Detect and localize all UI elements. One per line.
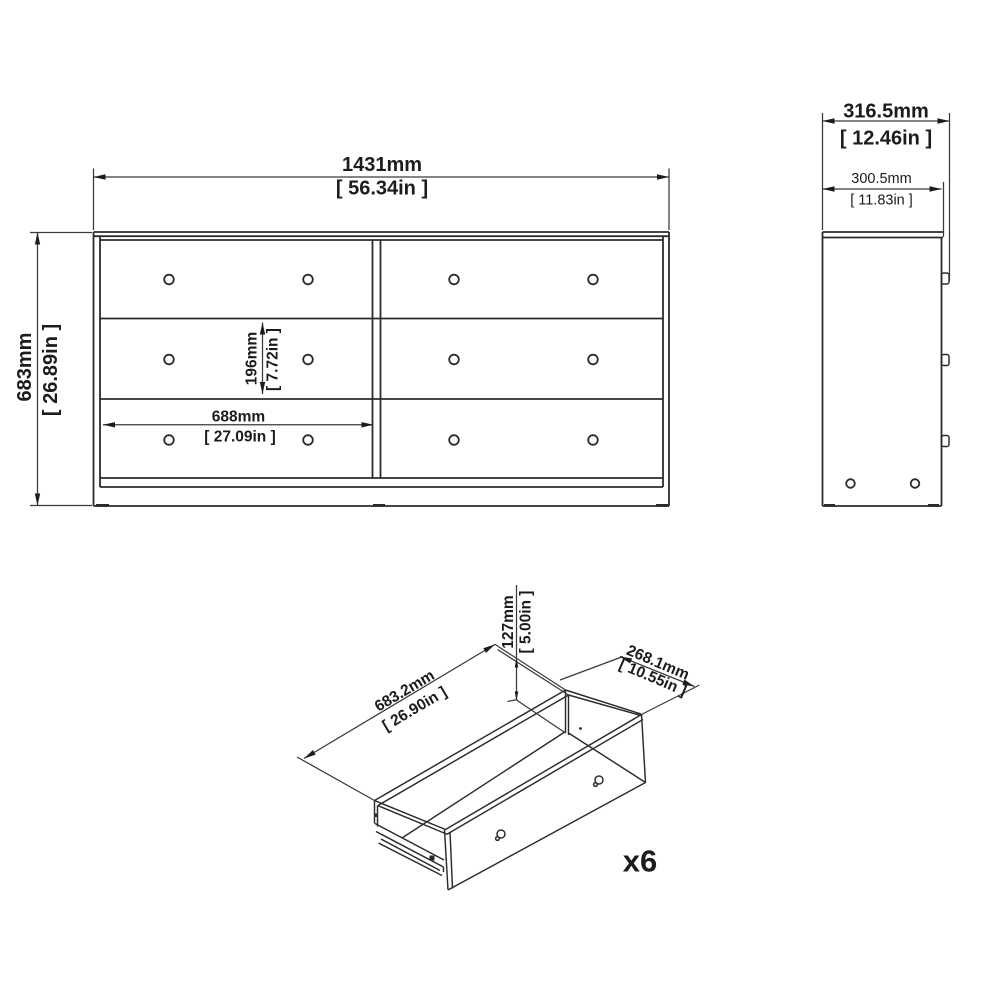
svg-text:[ 7.72in ]: [ 7.72in ] — [265, 328, 282, 391]
svg-text:688mm: 688mm — [212, 409, 265, 426]
svg-text:[ 11.83in ]: [ 11.83in ] — [850, 193, 913, 209]
svg-text:[ 26.89in ]: [ 26.89in ] — [40, 324, 62, 416]
svg-text:1431mm: 1431mm — [342, 154, 422, 176]
svg-text:127mm: 127mm — [500, 595, 517, 648]
svg-text:300.5mm: 300.5mm — [851, 171, 911, 187]
svg-text:x6: x6 — [623, 844, 657, 879]
svg-text:[ 27.09in ]: [ 27.09in ] — [204, 429, 276, 446]
svg-text:[ 12.46in ]: [ 12.46in ] — [840, 128, 932, 150]
svg-text:196mm: 196mm — [244, 332, 261, 385]
svg-text:[ 5.00in ]: [ 5.00in ] — [518, 591, 535, 654]
svg-text:[ 56.34in ]: [ 56.34in ] — [336, 178, 428, 200]
svg-text:683mm: 683mm — [14, 333, 36, 402]
svg-text:316.5mm: 316.5mm — [843, 101, 929, 123]
